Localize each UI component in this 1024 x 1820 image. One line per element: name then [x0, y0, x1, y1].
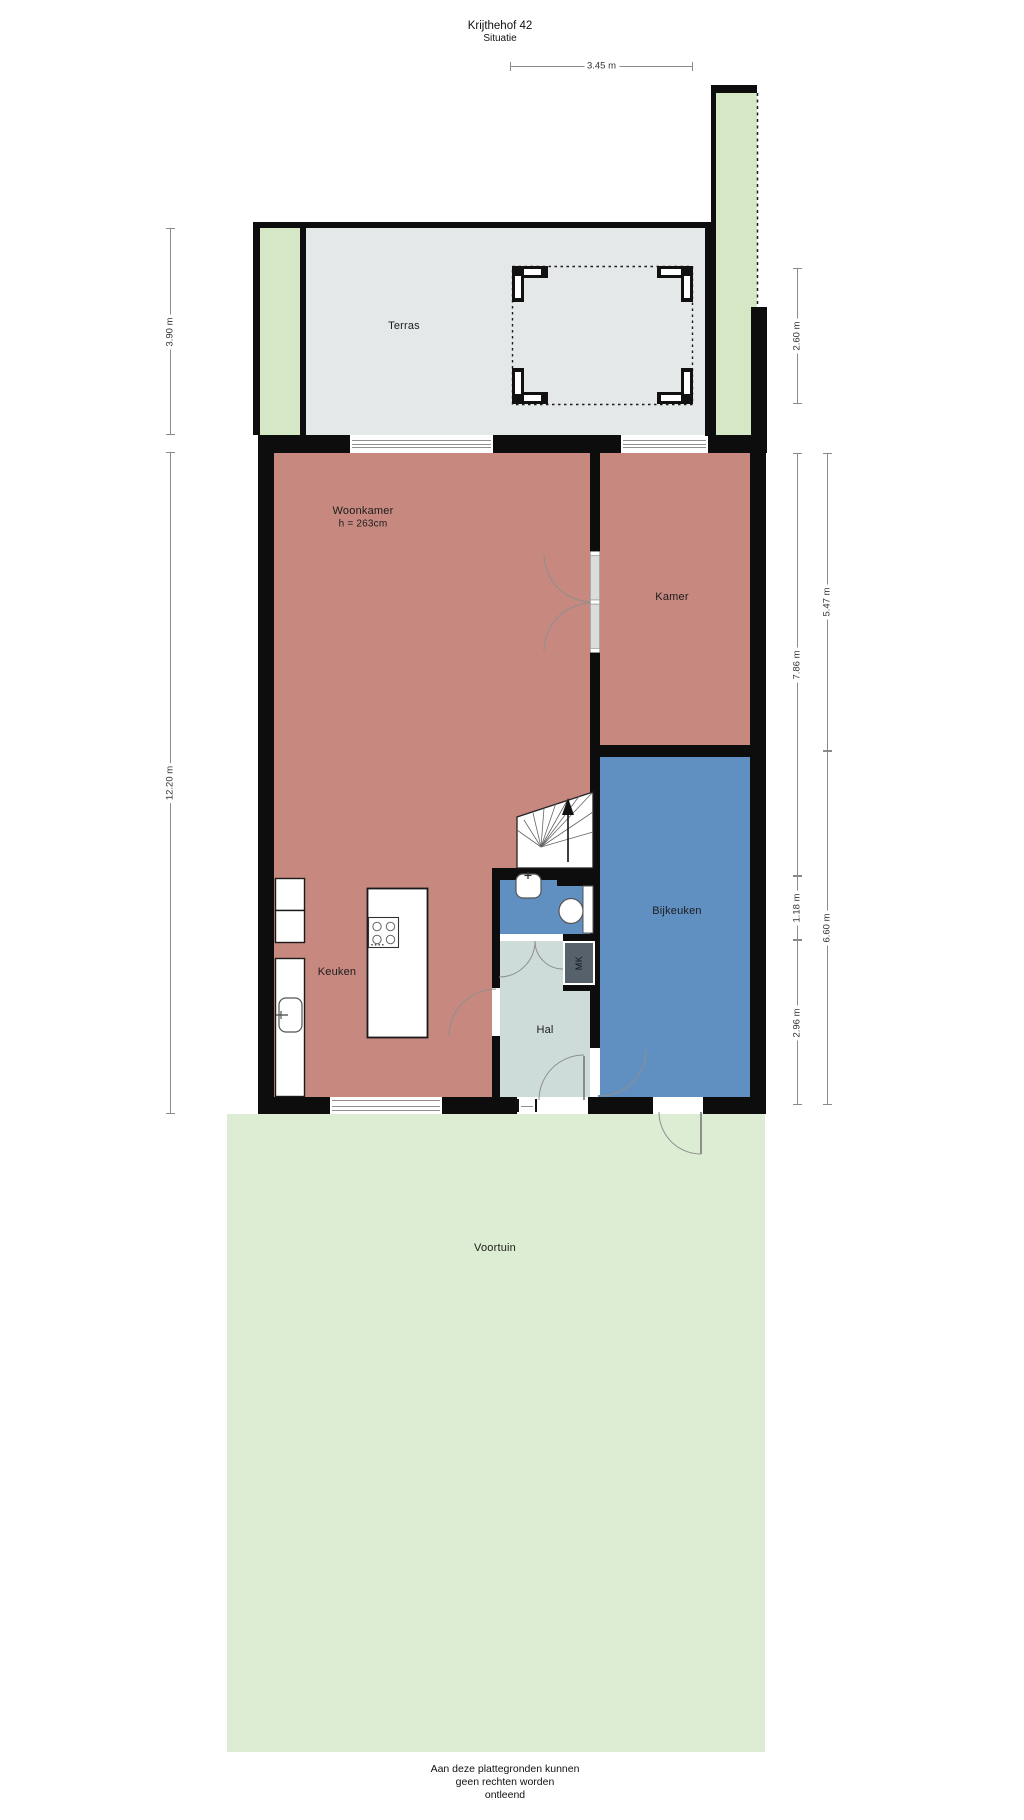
neighbor-wall [751, 307, 767, 453]
utility-room-area [598, 757, 750, 1097]
front-garden-area [227, 1114, 765, 1752]
wall [492, 934, 500, 941]
terrace-green-strip [260, 228, 300, 435]
terrace-area [306, 228, 705, 435]
room-label-woonkamer: Woonkamer [333, 505, 394, 517]
dimension-right-inner-bottom: 2.96 m [791, 940, 803, 1105]
wall [253, 222, 711, 228]
dimension-right-inner-top: 7.86 m [791, 453, 803, 876]
page-subtitle: Situatie [483, 33, 516, 44]
wall [442, 1097, 517, 1114]
room-label-keuken: Keuken [318, 966, 357, 978]
wall [492, 1036, 500, 1097]
wall [750, 435, 766, 1114]
dimension-right-outer-top: 5.47 m [821, 453, 833, 751]
meter-cupboard: MK [563, 941, 595, 985]
room-label-woonkamer-height: h = 263cm [339, 519, 388, 530]
room-label-voortuin: Voortuin [474, 1242, 516, 1254]
utility-door-opening [653, 1097, 703, 1114]
double-door-opening [590, 552, 600, 652]
wall [588, 1097, 653, 1114]
wall [492, 868, 500, 988]
dimension-house-left: 12.20 m [164, 452, 176, 1114]
wall [590, 453, 600, 552]
kitchen-door-opening [492, 988, 500, 1036]
dimension-right-outer-bottom: 6.60 m [821, 751, 833, 1105]
wall [493, 435, 621, 453]
dimension-pergola-height: 2.60 m [791, 268, 803, 404]
dimension-terrace-left: 3.90 m [164, 228, 176, 435]
toilet-door-opening [500, 934, 563, 941]
footer-disclaimer-line2: geen rechten worden [456, 1776, 555, 1788]
wall [711, 85, 757, 93]
front-door-opening [537, 1097, 588, 1114]
window [330, 1097, 442, 1114]
footer-disclaimer-line3: ontleend [485, 1789, 525, 1801]
dimension-right-inner-mid: 1.18 m [791, 876, 803, 940]
dimension-pergola-width: 3.45 m [510, 60, 693, 72]
room-label-hal: Hal [536, 1024, 553, 1036]
page-title: Krijthehof 42 [468, 20, 533, 32]
wall [258, 435, 274, 1114]
wall [711, 85, 716, 436]
window [350, 437, 493, 451]
footer-disclaimer-line1: Aan deze plattegronden kunnen [431, 1763, 580, 1775]
wall [300, 228, 306, 435]
wall [258, 1097, 330, 1114]
hall-utility-door-opening [590, 1048, 600, 1095]
sidelight-window [517, 1099, 537, 1112]
window [621, 437, 708, 451]
wall [557, 868, 593, 886]
floorplan-page: Krijthehof 42 Situatie MK [0, 0, 1024, 1820]
room-label-kamer: Kamer [655, 591, 688, 603]
wall [703, 1097, 766, 1114]
room-label-terras: Terras [388, 320, 420, 332]
wall [253, 222, 260, 435]
room-label-bijkeuken: Bijkeuken [652, 905, 702, 917]
wall [600, 745, 766, 757]
meter-cupboard-label: MK [574, 956, 584, 971]
toilet-room-area [500, 878, 593, 934]
